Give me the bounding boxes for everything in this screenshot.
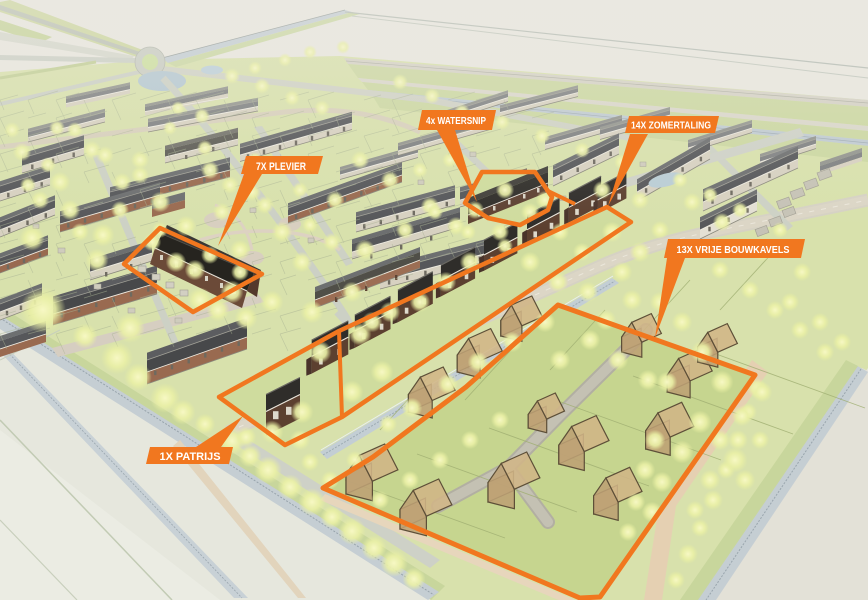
svg-text:4x WATERSNIP: 4x WATERSNIP xyxy=(426,115,486,127)
svg-text:1X PATRIJS: 1X PATRIJS xyxy=(160,451,221,463)
svg-text:13X VRIJE BOUWKAVELS: 13X VRIJE BOUWKAVELS xyxy=(677,244,790,256)
svg-text:14X ZOMERTALING: 14X ZOMERTALING xyxy=(631,120,711,132)
svg-text:7X PLEVIER: 7X PLEVIER xyxy=(256,161,306,173)
